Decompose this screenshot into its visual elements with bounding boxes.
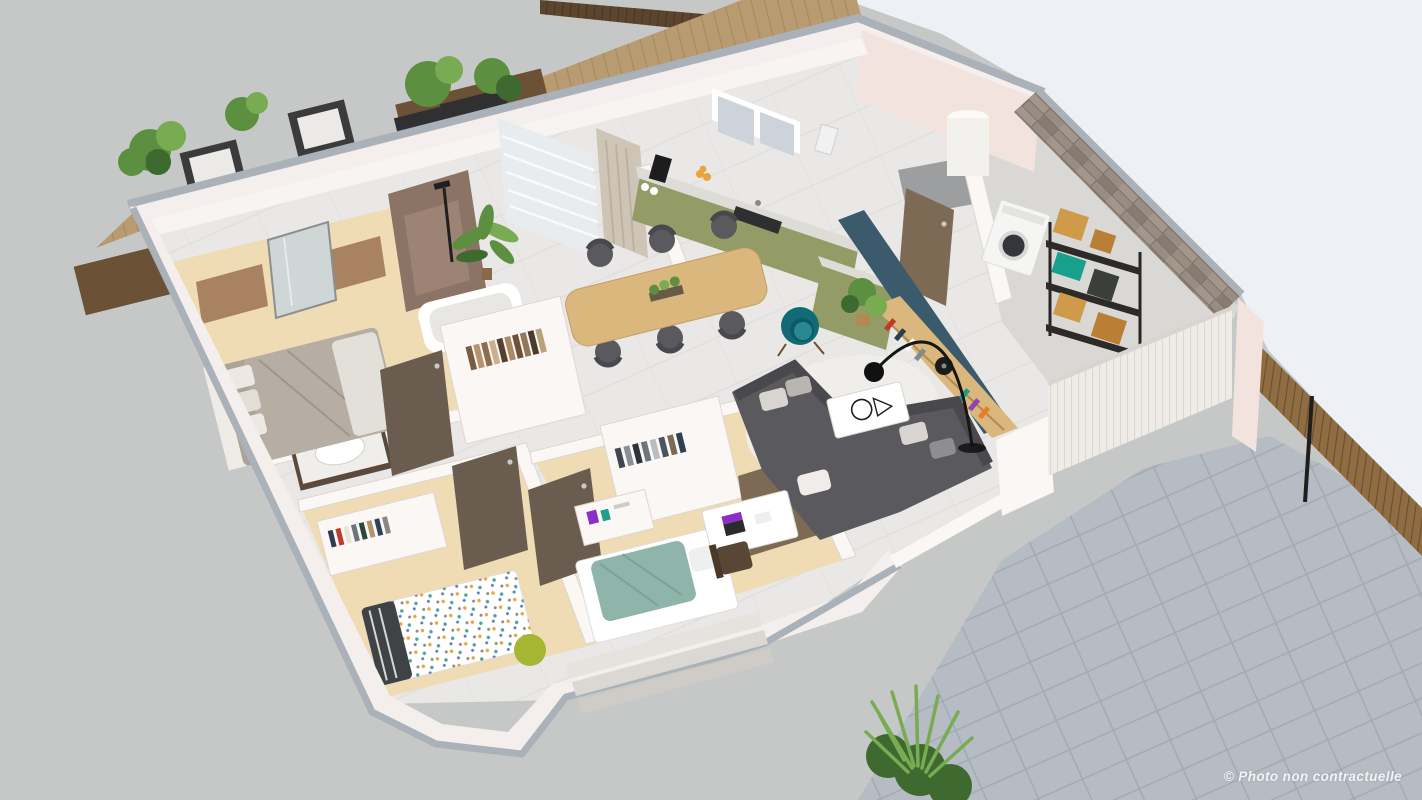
faucet xyxy=(755,200,761,206)
watermark-text: © Photo non contractuelle xyxy=(1224,769,1402,784)
watermark: © Photo non contractuelle xyxy=(1224,769,1402,784)
water-heater-column xyxy=(947,118,989,176)
lime-pouf xyxy=(514,634,546,666)
floor-plan-render: © Photo non contractuelle xyxy=(0,0,1422,800)
terrace-door-mirror xyxy=(268,222,336,318)
floor-plan-scene xyxy=(0,0,1422,800)
